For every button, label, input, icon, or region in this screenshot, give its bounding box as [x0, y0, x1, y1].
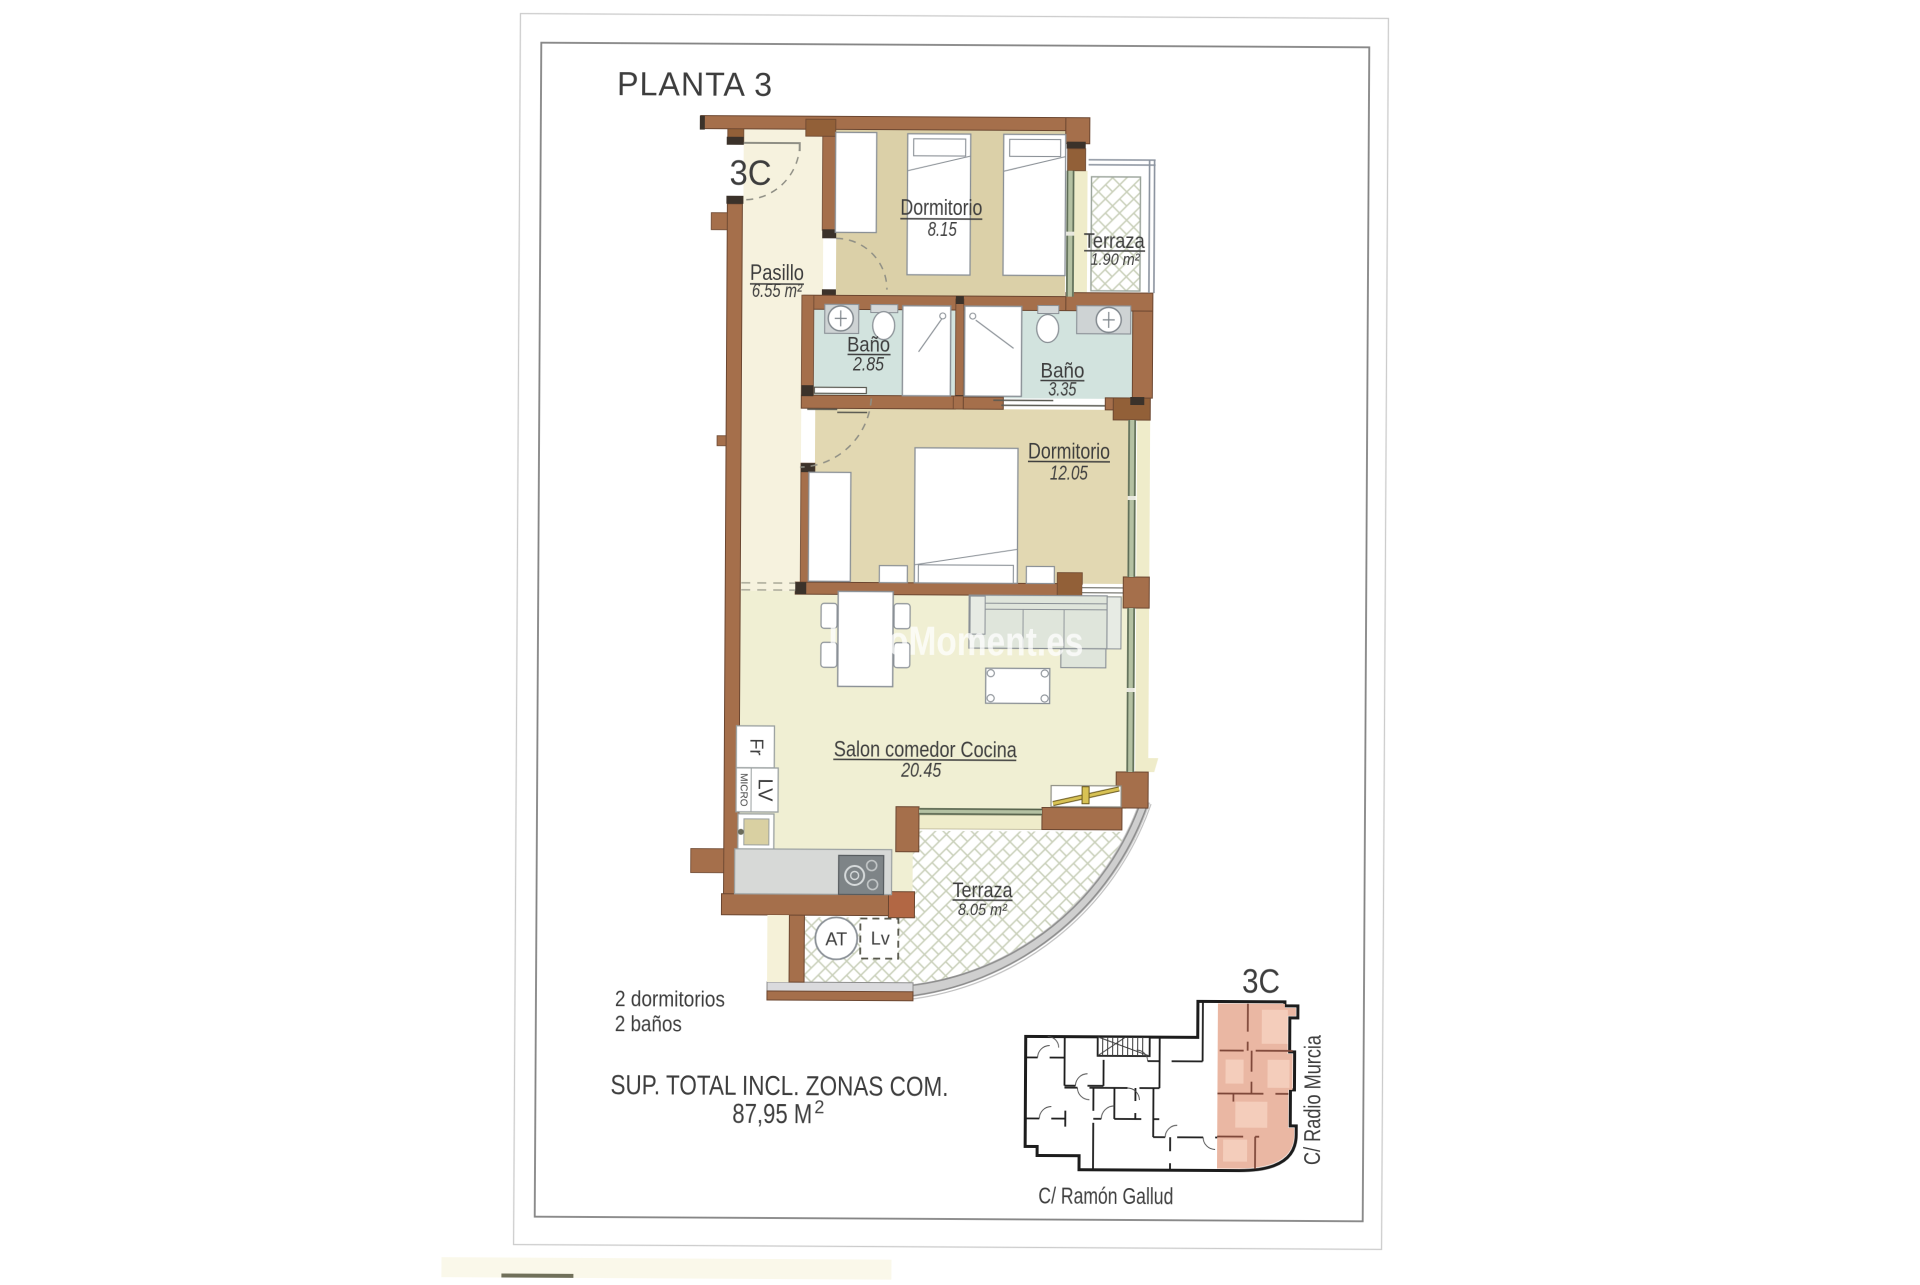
svg-text:3.35: 3.35: [1048, 380, 1076, 401]
svg-text:MICRO: MICRO: [737, 773, 748, 807]
svg-text:InmoMoment.es: InmoMoment.es: [828, 617, 1083, 664]
svg-text:Dormitorio: Dormitorio: [900, 195, 982, 220]
svg-text:3C: 3C: [729, 154, 771, 193]
svg-text:Terraza: Terraza: [952, 879, 1012, 902]
svg-text:Fr: Fr: [747, 738, 767, 755]
svg-text:Baño: Baño: [847, 333, 890, 356]
svg-text:AT: AT: [825, 929, 847, 949]
svg-text:Lv: Lv: [871, 929, 890, 949]
svg-text:2: 2: [814, 1097, 824, 1117]
svg-text:2.85: 2.85: [852, 354, 884, 375]
svg-text:8.05 m²: 8.05 m²: [958, 900, 1008, 919]
svg-text:87,95 M: 87,95 M: [732, 1098, 812, 1129]
svg-text:2 baños: 2 baños: [615, 1011, 682, 1036]
svg-text:8.15: 8.15: [928, 219, 958, 241]
svg-text:LV: LV: [754, 778, 776, 802]
svg-text:PLANTA 3: PLANTA 3: [617, 65, 773, 103]
svg-text:3C: 3C: [1242, 963, 1280, 1001]
svg-text:C/ Radio Murcia: C/ Radio Murcia: [1299, 1035, 1326, 1165]
svg-text:2 dormitorios: 2 dormitorios: [615, 986, 725, 1012]
svg-text:6.55 m²: 6.55 m²: [752, 281, 803, 302]
svg-text:Salon comedor Cocina: Salon comedor Cocina: [834, 736, 1018, 762]
svg-text:12.05: 12.05: [1050, 463, 1089, 485]
svg-text:1.90 m²: 1.90 m²: [1091, 250, 1141, 269]
svg-text:Dormitorio: Dormitorio: [1028, 438, 1110, 463]
svg-text:C/ Ramón Gallud: C/ Ramón Gallud: [1038, 1182, 1173, 1209]
svg-text:20.45: 20.45: [900, 760, 942, 782]
